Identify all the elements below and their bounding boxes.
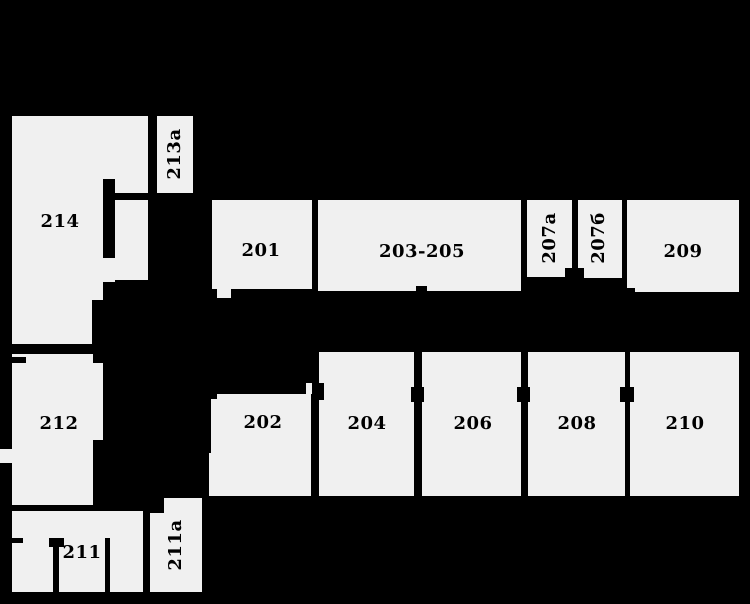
- wall-room202-corner-notch: [211, 394, 217, 399]
- wall-room211-inner-wall-left: [53, 547, 59, 592]
- room-label-207a: 207а: [541, 212, 559, 263]
- room-label-201: 201: [241, 242, 280, 260]
- door-204-206: [411, 387, 424, 402]
- wall-room212-wall-notch: [12, 357, 26, 363]
- room-label-204: 204: [347, 415, 386, 433]
- room-201-part-1: [217, 289, 231, 298]
- room-202-part-1: [209, 453, 211, 496]
- room-212-part-1: [93, 363, 103, 440]
- wall-room214-inner-wall-top: [115, 193, 148, 200]
- room-label-211: 211: [62, 544, 101, 562]
- room-label-208: 208: [557, 415, 596, 433]
- room-label-210: 210: [665, 415, 704, 433]
- room-202: [211, 394, 311, 496]
- room-212-part-2: [0, 449, 12, 463]
- room-label-212: 212: [39, 415, 78, 433]
- wall-room209-corner-notch: [627, 288, 635, 293]
- floor-plan: 214213а201203-205207а207б209212202204206…: [0, 0, 750, 604]
- room-label-209: 209: [663, 243, 702, 261]
- room-label-213a: 213а: [166, 128, 184, 179]
- room-label-203-205: 203-205: [379, 243, 465, 261]
- wall-room214-corner-block-mid: [92, 300, 103, 344]
- wall-room211-inner-wall-right: [105, 538, 110, 592]
- room-label-207b: 207б: [590, 212, 608, 264]
- wall-room214-inner-wall-lower: [103, 282, 115, 344]
- wall-room203-205-door-jamb: [416, 286, 427, 292]
- door-202-204: [312, 383, 324, 400]
- wall-room207-bottom-step: [565, 268, 584, 279]
- room-label-211a: 211а: [167, 519, 185, 570]
- wall-room214-corner-block-right: [115, 280, 148, 344]
- room-label-214: 214: [40, 213, 79, 231]
- door-208-210: [620, 387, 634, 402]
- room-211a-part-1: [164, 498, 202, 514]
- wall-room214-inner-wall-upper: [103, 179, 115, 258]
- room-label-206: 206: [453, 415, 492, 433]
- wall-room211-wall-notch: [12, 538, 23, 543]
- room-label-202: 202: [243, 414, 282, 432]
- door-206-208: [517, 387, 530, 402]
